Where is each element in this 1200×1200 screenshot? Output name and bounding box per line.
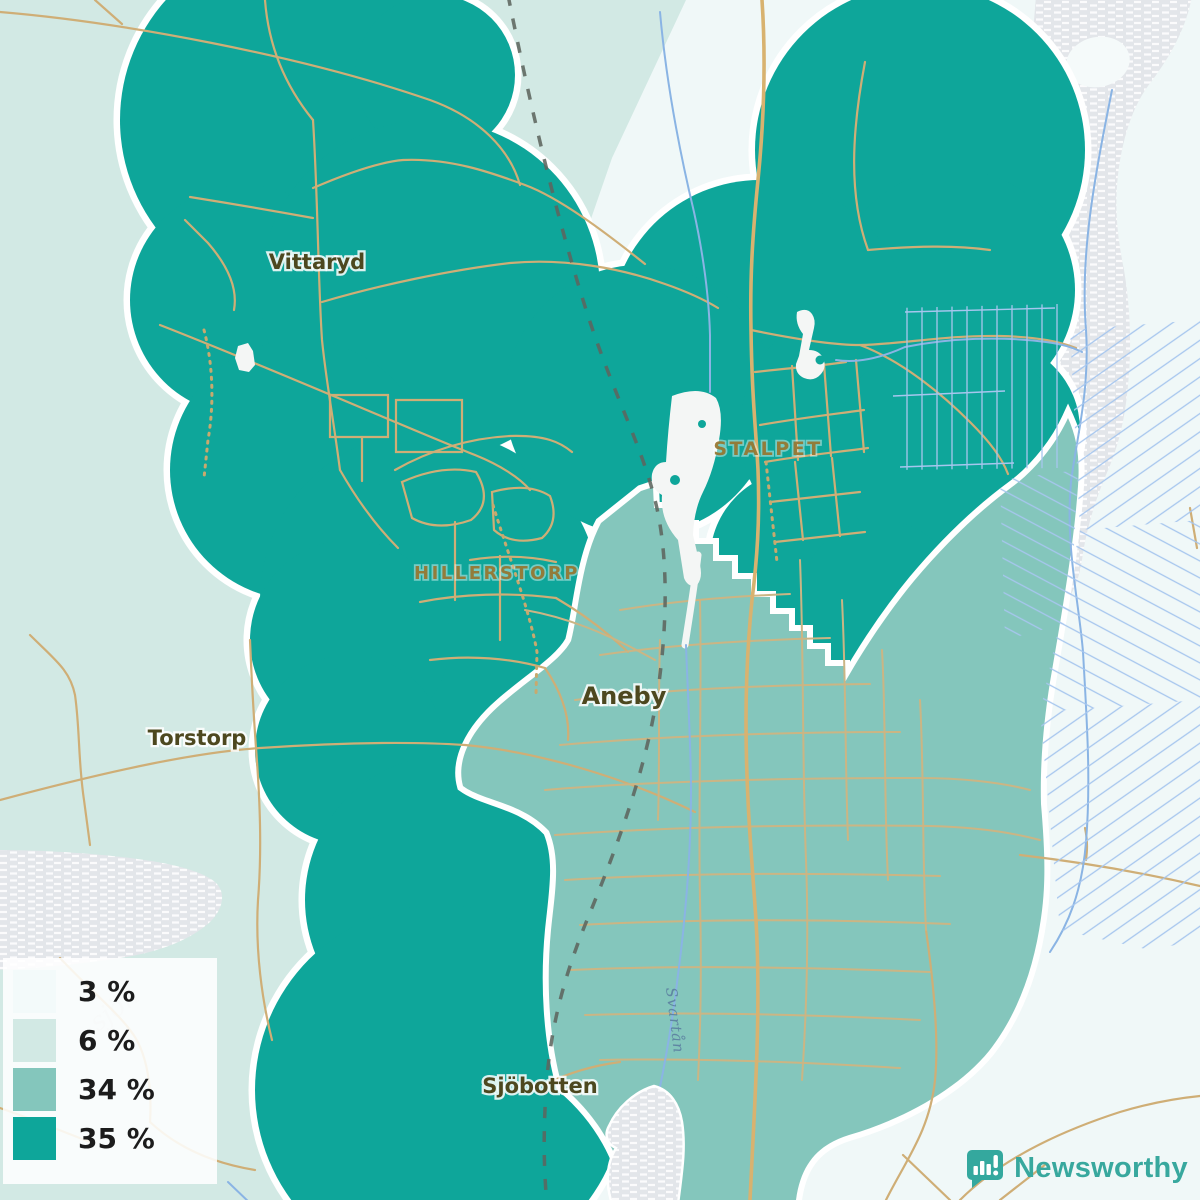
legend-label: 34 %: [78, 1076, 155, 1104]
newsworthy-logo-text: Newsworthy: [1014, 1152, 1188, 1185]
newsworthy-branding: Newsworthy: [965, 1148, 1188, 1188]
label-sjobotten: Sjöbotten: [482, 1074, 597, 1098]
newsworthy-logo-icon: [965, 1148, 1005, 1188]
legend-swatch-6pct: [13, 1019, 56, 1062]
label-torstorp: Torstorp: [148, 726, 247, 750]
label-hillerstorp: HILLERSTORP: [414, 563, 580, 584]
label-vittaryd: Vittaryd: [269, 250, 365, 274]
map-legend: 3 % 6 % 34 % 35 %: [3, 958, 217, 1184]
legend-row: 6 %: [13, 1019, 217, 1062]
legend-row: 35 %: [13, 1117, 217, 1160]
legend-row: 34 %: [13, 1068, 217, 1111]
label-aneby: Aneby: [582, 682, 667, 710]
legend-label: 3 %: [78, 978, 135, 1006]
legend-swatch-35pct: [13, 1117, 56, 1160]
map-infographic: sjön: [0, 0, 1200, 1200]
label-stalpet: STALPET: [713, 438, 822, 460]
legend-label: 6 %: [78, 1027, 135, 1055]
legend-label: 35 %: [78, 1125, 155, 1153]
legend-row: 3 %: [13, 970, 217, 1013]
legend-swatch-34pct: [13, 1068, 56, 1111]
legend-swatch-3pct: [13, 970, 56, 1013]
